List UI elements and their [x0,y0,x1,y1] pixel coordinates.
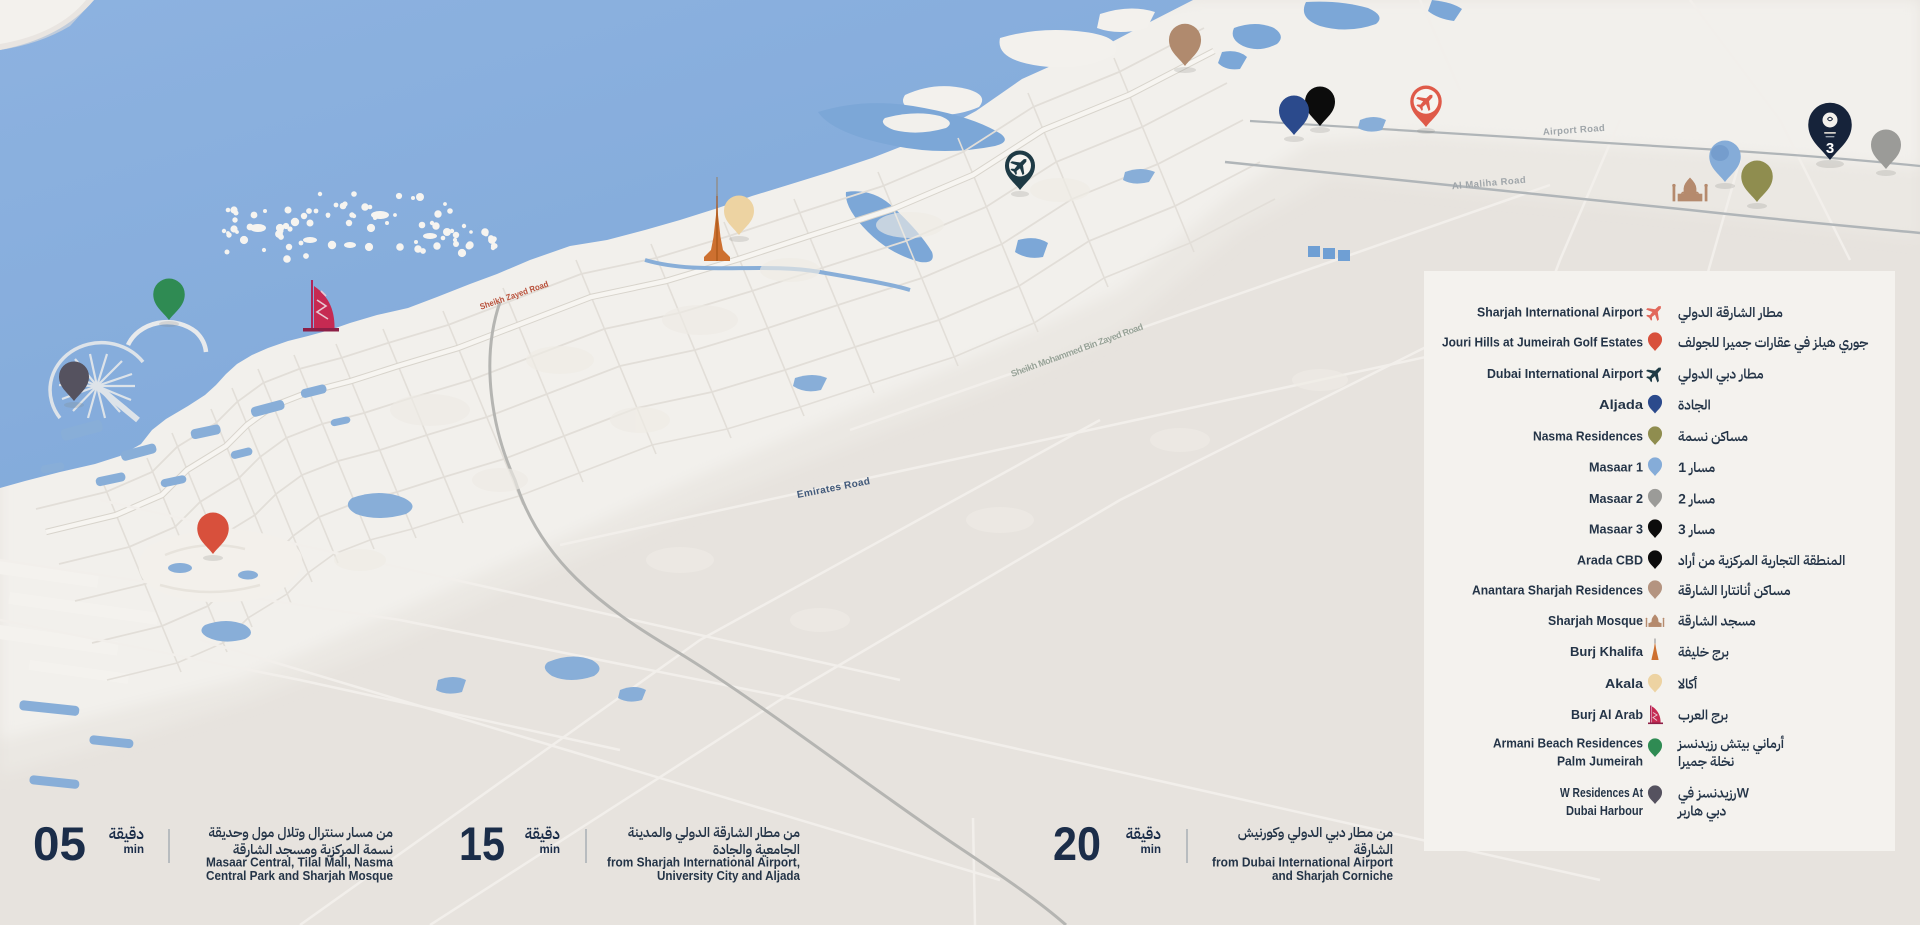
svg-text:min: min [540,844,560,856]
svg-text:and Sharjah Corniche: and Sharjah Corniche [1272,869,1393,883]
svg-text:Burj Khalifa: Burj Khalifa [1570,645,1644,659]
svg-text:Masaar 3: Masaar 3 [1589,523,1643,537]
svg-text:Burj Al Arab: Burj Al Arab [1571,708,1643,722]
svg-text:Dubai International Airport: Dubai International Airport [1487,367,1644,381]
svg-text:Anantara Sharjah Residences: Anantara Sharjah Residences [1472,584,1643,598]
svg-text:Aljada: Aljada [1599,398,1644,412]
svg-text:Jouri Hills at Jumeirah Golf E: Jouri Hills at Jumeirah Golf Estates [1442,336,1643,350]
svg-text:Sharjah International Airport: Sharjah International Airport [1477,306,1644,320]
svg-text:20: 20 [1053,817,1101,870]
svg-text:05: 05 [33,817,86,870]
svg-text:3: 3 [1826,140,1834,157]
svg-text:15: 15 [459,817,505,870]
svg-text:min: min [1141,844,1161,856]
svg-text:Armani Beach Residences: Armani Beach Residences [1493,737,1643,751]
svg-text:Central Park and Sharjah Mosqu: Central Park and Sharjah Mosque [206,869,393,883]
svg-text:Arada CBD: Arada CBD [1577,554,1643,568]
svg-text:Masaar 2: Masaar 2 [1589,492,1643,506]
svg-text:from Sharjah International Air: from Sharjah International Airport, [607,856,800,870]
svg-text:Palm Jumeirah: Palm Jumeirah [1557,755,1643,769]
svg-text:Masaar Central, Tilal Mall, Na: Masaar Central, Tilal Mall, Nasma [206,856,394,870]
svg-text:Nasma Residences: Nasma Residences [1533,430,1643,444]
svg-text:Akala: Akala [1605,677,1644,691]
svg-text:University City and Aljada: University City and Aljada [657,869,801,883]
svg-text:W Residences At: W Residences At [1560,786,1644,800]
svg-text:min: min [124,844,144,856]
svg-text:Dubai Harbour: Dubai Harbour [1566,804,1643,818]
svg-text:Sharjah Mosque: Sharjah Mosque [1548,614,1643,628]
svg-text:from Dubai International Airpo: from Dubai International Airport [1212,856,1394,870]
svg-text:Masaar 1: Masaar 1 [1589,461,1643,475]
